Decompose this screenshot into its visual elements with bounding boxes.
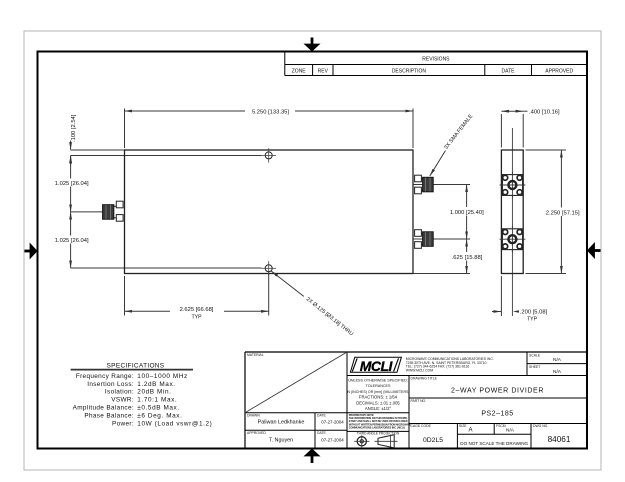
svg-text:IN (INCHES) OR [mm] (MILLIMETE: IN (INCHES) OR [mm] (MILLIMETERS) — [346, 390, 409, 394]
svg-text:DRAWN: DRAWN — [247, 413, 260, 417]
svg-text:1.000 [25.40]: 1.000 [25.40] — [450, 210, 484, 216]
svg-text:DWG NO.: DWG NO. — [533, 424, 548, 428]
svg-text:TYP: TYP — [191, 314, 202, 320]
svg-text:TOLERANCES: TOLERANCES — [366, 384, 391, 388]
svg-text:Paliwan Ledkhanke: Paliwan Ledkhanke — [258, 419, 305, 425]
svg-text:SCALE: SCALE — [529, 353, 541, 357]
svg-text:ZONE: ZONE — [292, 69, 307, 75]
svg-text:DECIMALS: ±.01 ±.005: DECIMALS: ±.01 ±.005 — [356, 400, 400, 405]
svg-text:Isolation:: Isolation: — [105, 389, 134, 396]
svg-text:1.025 [26.04]: 1.025 [26.04] — [55, 181, 89, 187]
svg-text:07-27-2004: 07-27-2004 — [321, 437, 344, 442]
svg-text:APPROVED: APPROVED — [545, 69, 573, 75]
svg-text:VSWR:: VSWR: — [111, 397, 134, 404]
svg-text:.200 [5.08]: .200 [5.08] — [520, 310, 548, 316]
svg-text:5.250 [133.35]: 5.250 [133.35] — [252, 109, 289, 115]
svg-text:REVISIONS: REVISIONS — [422, 56, 450, 62]
svg-text:A: A — [468, 428, 472, 434]
svg-text:.625 [15.88]: .625 [15.88] — [452, 255, 483, 261]
svg-text:Amplitude Balance:: Amplitude Balance: — [73, 405, 134, 412]
svg-text:PART NO.: PART NO. — [411, 399, 427, 403]
svg-text:DRAWING TITLE: DRAWING TITLE — [411, 376, 438, 380]
svg-text:PS2–185: PS2–185 — [481, 410, 513, 417]
svg-text:REV: REV — [318, 69, 329, 75]
svg-text:FRACTIONS: ± 1/64: FRACTIONS: ± 1/64 — [359, 395, 398, 400]
svg-text:.400 [10.16]: .400 [10.16] — [529, 109, 560, 115]
svg-text:2–WAY POWER DIVIDER: 2–WAY POWER DIVIDER — [451, 388, 544, 395]
svg-text:CAGE CODE: CAGE CODE — [411, 424, 432, 428]
svg-text:FSCM: FSCM — [496, 424, 506, 428]
svg-text:DATE: DATE — [502, 69, 516, 75]
svg-text:ANGLE: ±1/2°: ANGLE: ±1/2° — [365, 406, 392, 411]
svg-text:SIZE: SIZE — [459, 424, 467, 428]
svg-text:Insertion Loss:: Insertion Loss: — [87, 381, 134, 388]
svg-text:T. Nguyen: T. Nguyen — [269, 437, 293, 443]
svg-text:COMMUNICATIONS LABORATORIES IN: COMMUNICATIONS LABORATORIES INC. (MCLI) — [349, 426, 405, 429]
svg-text:1.70:1 Max.: 1.70:1 Max. — [137, 397, 177, 404]
svg-text:Power:: Power: — [112, 420, 134, 427]
svg-text:UNLESS OTHERWISE SPECIFIED:: UNLESS OTHERWISE SPECIFIED: — [348, 379, 408, 383]
svg-text:SPECIFICATIONS: SPECIFICATIONS — [107, 362, 165, 369]
svg-text:WWW.MCLI.COM: WWW.MCLI.COM — [406, 368, 433, 372]
svg-text:N/A: N/A — [553, 357, 562, 363]
svg-text:DATE: DATE — [317, 431, 327, 435]
svg-text:.100 [2.54]: .100 [2.54] — [71, 114, 77, 142]
svg-text:84061: 84061 — [548, 435, 571, 444]
svg-text:07-27-2004: 07-27-2004 — [321, 419, 344, 424]
svg-text:Frequency Range:: Frequency Range: — [76, 373, 134, 380]
svg-text:1.2dB Max.: 1.2dB Max. — [137, 381, 175, 388]
svg-text:APPROVED: APPROVED — [247, 431, 266, 435]
svg-text:DO NOT SCALE THE DRAWING: DO NOT SCALE THE DRAWING — [460, 441, 528, 446]
svg-text:DATE: DATE — [317, 413, 327, 417]
svg-text:2.250 [57.15]: 2.250 [57.15] — [546, 210, 580, 216]
svg-text:DESCRIPTION: DESCRIPTION — [392, 69, 427, 75]
svg-text:SHEET: SHEET — [529, 365, 540, 369]
svg-text:20dB Min.: 20dB Min. — [137, 389, 171, 396]
svg-text:±6 Deg. Max.: ±6 Deg. Max. — [137, 412, 182, 419]
svg-text:100–1000 MHz: 100–1000 MHz — [137, 373, 188, 380]
svg-text:±0.5dB Max.: ±0.5dB Max. — [137, 405, 179, 412]
svg-text:2.625 [66.68]: 2.625 [66.68] — [180, 307, 214, 313]
svg-text:N/A: N/A — [506, 428, 515, 434]
svg-text:1.025 [26.04]: 1.025 [26.04] — [55, 238, 89, 244]
svg-text:0D2L5: 0D2L5 — [423, 437, 443, 444]
svg-text:N/A: N/A — [553, 369, 562, 375]
svg-text:MATERIAL: MATERIAL — [247, 353, 264, 357]
svg-text:Phase Balance:: Phase Balance: — [84, 412, 134, 419]
svg-text:10W (Load vswr@1.2): 10W (Load vswr@1.2) — [137, 420, 212, 427]
svg-text:MCLI: MCLI — [360, 358, 394, 374]
svg-text:TYP: TYP — [527, 317, 538, 323]
